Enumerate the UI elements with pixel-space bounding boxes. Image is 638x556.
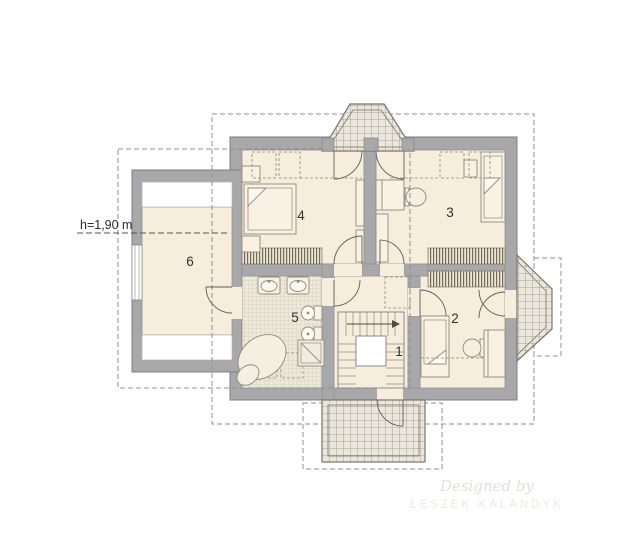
- room-label-3: 3: [446, 205, 454, 220]
- closet-hatch-room2: [428, 271, 505, 287]
- bottom-balcony: [322, 400, 425, 462]
- room-6-floor: [142, 207, 232, 335]
- room-label-6: 6: [186, 254, 194, 269]
- watermark-line2: LESZEK KALANDYK: [410, 499, 564, 511]
- room-label-4: 4: [297, 208, 305, 223]
- chair: [463, 339, 481, 357]
- closet-hatch-room3: [428, 248, 505, 264]
- right-bay-balcony: [517, 255, 552, 361]
- bedroom-4-cabinet: [356, 180, 364, 226]
- room-label-5: 5: [291, 310, 299, 325]
- top-bay-balcony: [322, 104, 414, 151]
- bedroom-2-bed: [421, 316, 449, 377]
- shower: [298, 340, 324, 366]
- floor-plan-canvas: 1 2 3 4 5 6 h=1,90 m Designed by LESZEK …: [0, 0, 638, 556]
- room-6-low-roof-strip-bottom: [142, 335, 232, 360]
- chair: [406, 188, 426, 206]
- toilet: [302, 306, 323, 320]
- watermark: Designed by LESZEK KALANDYK: [410, 477, 564, 511]
- room-label-1: 1: [395, 344, 403, 359]
- watermark-line1: Designed by: [439, 477, 535, 495]
- window: [132, 245, 142, 300]
- room-6-low-roof-strip-top: [142, 182, 232, 207]
- bedroom-3-cabinet: [376, 214, 388, 262]
- bathroom-sink: [258, 277, 280, 294]
- bidet: [302, 327, 323, 341]
- height-note: h=1,90 m: [80, 218, 132, 232]
- bedroom-3-bed: [481, 152, 505, 222]
- bathroom-sink: [287, 277, 309, 294]
- floor-plan-page: 1 2 3 4 5 6 h=1,90 m Designed by LESZEK …: [0, 0, 638, 556]
- bedroom-4-cabinet: [356, 230, 364, 262]
- room-label-2: 2: [451, 311, 459, 326]
- bedroom-3-nightstand: [464, 160, 477, 177]
- stairs: [338, 312, 404, 388]
- stair-well: [356, 336, 386, 366]
